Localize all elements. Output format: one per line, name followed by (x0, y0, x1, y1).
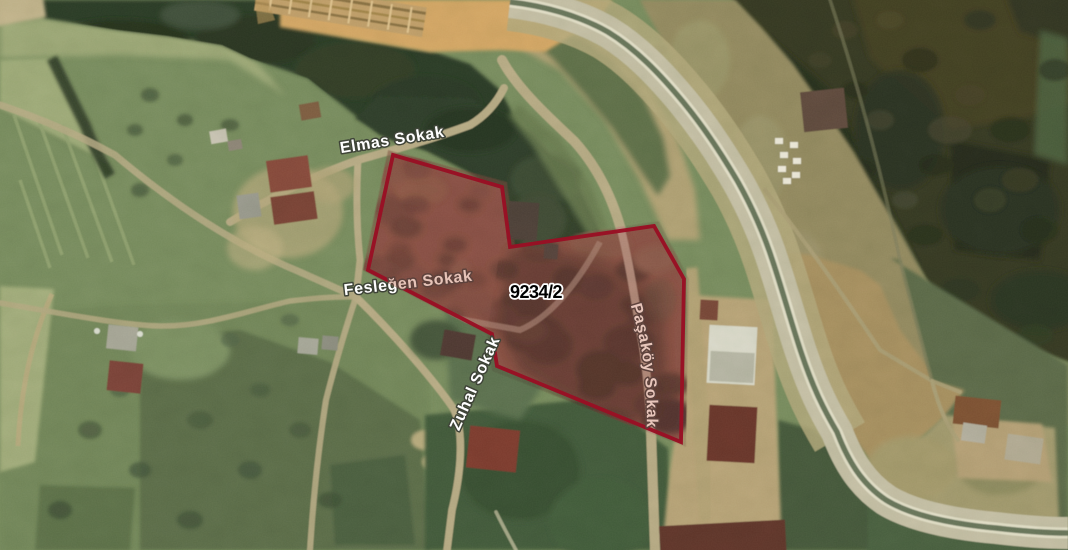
svg-text:9234/2: 9234/2 (510, 282, 563, 302)
